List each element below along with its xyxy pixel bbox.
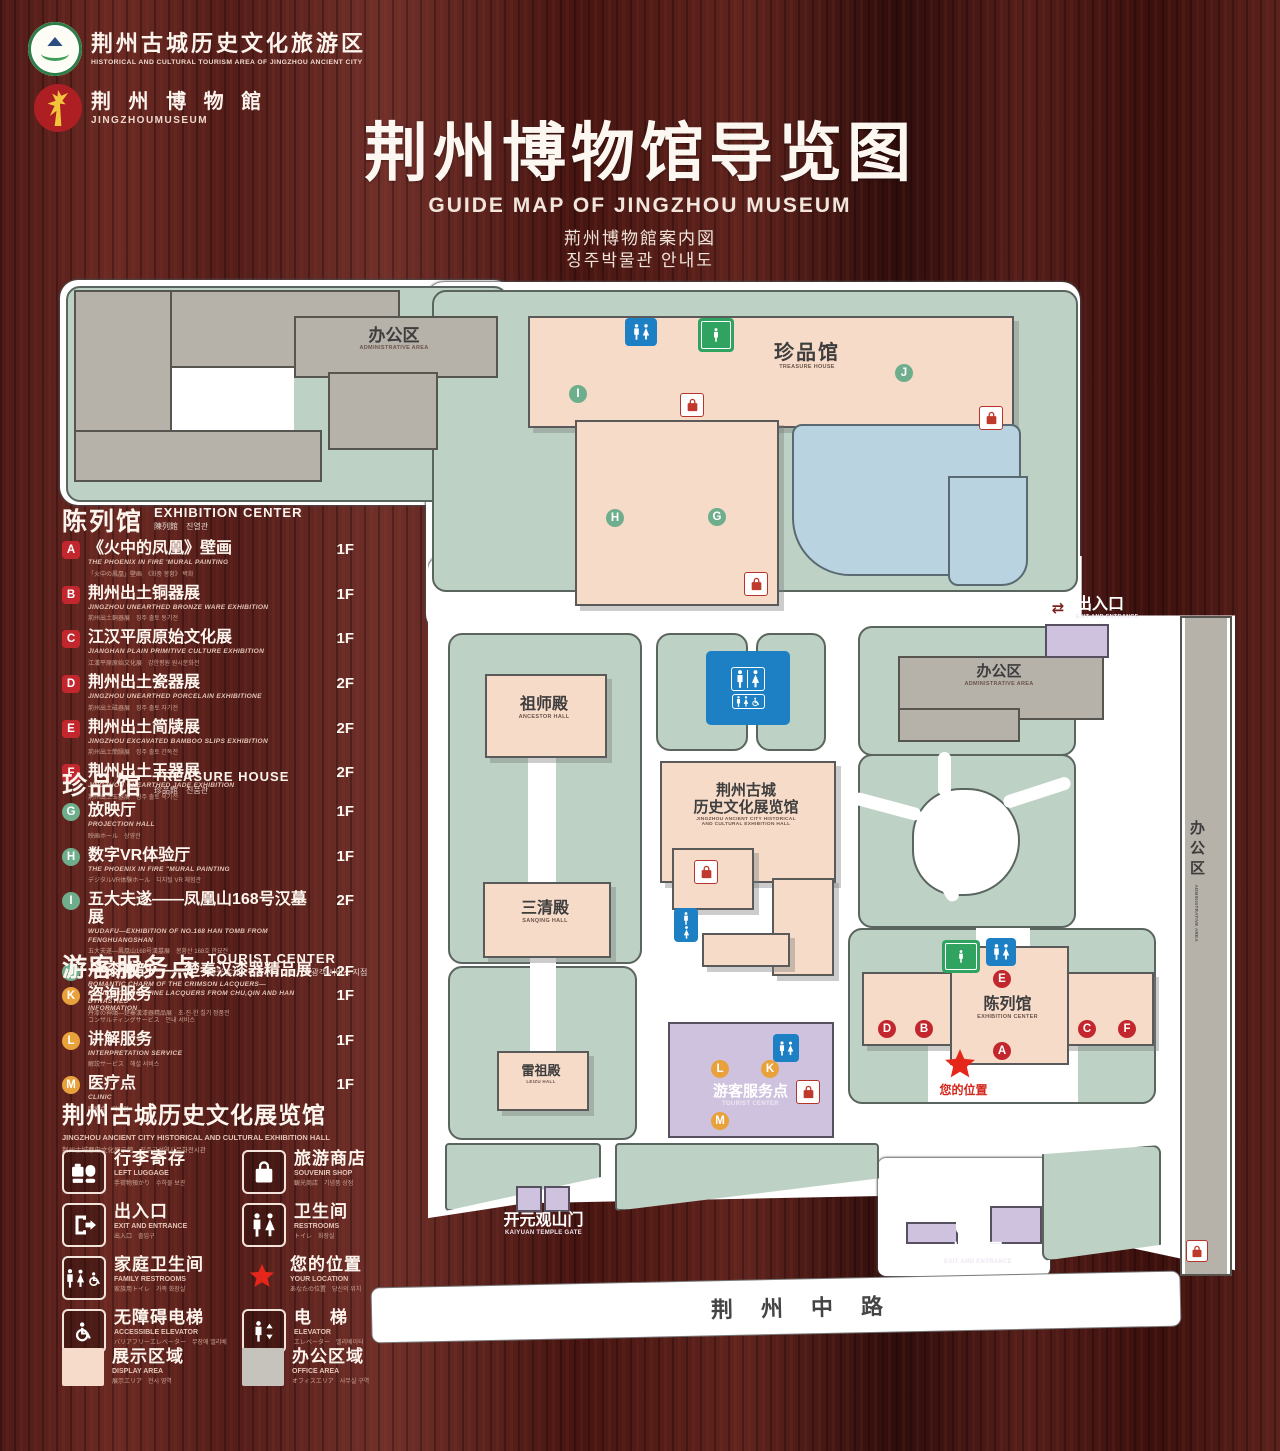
label-sanqing-hall: 三清殿SANQING HALL [485, 900, 605, 924]
map-badge-j: J [895, 364, 913, 382]
badge-d: D [62, 675, 80, 693]
floor-label: 1F [336, 1032, 354, 1049]
floor-label: 2F [336, 892, 354, 909]
restrooms-family-icon [706, 651, 790, 725]
area-office: 办公区域OFFICE AREAオフィスエリア 사무실 구역 [242, 1348, 410, 1386]
road-label: 荆州中路 [711, 1288, 912, 1324]
legend-item-g: G放映厅PROJECTION HALL映画ホール 상영관1F [62, 802, 354, 840]
legend-item-d: D荆州出土瓷器展JINGZHOU UNEARTHED PORCELAIN EXH… [62, 674, 354, 712]
badge-h: H [62, 848, 80, 866]
restrooms-icon [674, 908, 698, 942]
label-tourist-center: 游客服务点TOURIST CENTER [688, 1084, 813, 1108]
souvenir-shop-icon [242, 1150, 286, 1194]
badge-l: L [62, 1032, 80, 1050]
tourism-area-logo-icon [28, 22, 82, 76]
exit-entrance-icon: ⇅ [956, 1200, 990, 1234]
museum-logo-icon [34, 84, 82, 132]
map-badge-f: F [1118, 1020, 1136, 1038]
elevator-icon [698, 318, 734, 352]
exit-entrance-icon: ⇄ [1046, 596, 1070, 620]
your-location-star [944, 1048, 976, 1080]
page-title: 荆州博物馆导览图 [240, 102, 1040, 194]
facilities-legend: 行李寄存LEFT LUGGAGE手荷物預かり 수하물 보관 旅游商店SOUVEN… [62, 1150, 410, 1355]
history-exhibition-hall-building [702, 933, 790, 967]
badge-e: E [62, 720, 80, 738]
floor-label: 2F [336, 764, 354, 781]
floor-label: 1F [336, 1076, 354, 1093]
legend-item-e: E荆州出土简牍展JINGZHOU EXCAVATED BAMBOO SLIPS … [62, 719, 354, 757]
map-badge-d: D [878, 1020, 896, 1038]
map-badge-m: M [711, 1112, 729, 1130]
facility-souvenir-shop: 旅游商店SOUVENIR SHOP観光商店 기념품 상점 [242, 1150, 410, 1194]
souvenir-shop-icon [694, 860, 718, 884]
label-admin-east: 办公区ADMINISTRATIVE AREA [900, 664, 1098, 687]
floor-label: 1F [336, 541, 354, 558]
area-display: 展示区域DISPLAY AREA展示エリア 전시 영역 [62, 1348, 230, 1386]
floor-label: 1F [336, 803, 354, 820]
facility-left-luggage: 行李寄存LEFT LUGGAGE手荷物預かり 수하물 보관 [62, 1150, 230, 1194]
section-title-sub: 珍品館 진품관 [154, 785, 289, 796]
map-badge-h: H [606, 509, 624, 527]
page-subtitle-en: GUIDE MAP OF JINGZHOU MUSEUM [240, 194, 1040, 218]
floor-label: 1F [336, 848, 354, 865]
display-area-swatch [62, 1348, 104, 1386]
page-subtitle-ko: 징주박물관 안내도 [240, 246, 1040, 271]
legend-section-treasure-header: 珍品馆 TREASURE HOUSE珍品館 진품관 [62, 766, 289, 802]
label-your-location: 您的位置 [916, 1084, 1011, 1097]
map-badge-k: K [761, 1060, 779, 1078]
hall-note: 荆州古城历史文化展览馆 JINGZHOU ANCIENT CITY HISTOR… [62, 1096, 422, 1154]
label-treasure-house: 珍品馆TREASURE HOUSE [742, 342, 872, 371]
admin-building-nw [328, 372, 438, 450]
label-admin-strip: 办公区 ADMINISTRATIVE AREA [1186, 820, 1207, 1000]
exit-gate-south [990, 1206, 1042, 1244]
legend-item-b: B荆州出土铜器展JINGZHOU UNEARTHED BRONZE WARE E… [62, 585, 354, 623]
tourism-area-logo-cn: 荆州古城历史文化旅游区 [91, 32, 366, 56]
corridor-sanqing-leizu [530, 950, 556, 1054]
label-kaiyuan-gate: 开元观山门KAIYUAN TEMPLE GATE [466, 1212, 621, 1237]
elevator-icon [942, 940, 980, 973]
courtyard-cut [168, 364, 294, 430]
left-luggage-icon [62, 1150, 106, 1194]
treasure-house-building [528, 316, 1014, 428]
accessible-elevator-icon [62, 1309, 106, 1353]
admin-building-east [898, 708, 1020, 742]
map-badge-b: B [915, 1020, 933, 1038]
restrooms-icon [625, 318, 657, 346]
facility-exit-entrance: 出入口EXIT AND ENTRANCE出入口 출입구 [62, 1203, 230, 1247]
label-exit-south: 出入口EXIT AND ENTRANCE [918, 1240, 1038, 1266]
garden-path [938, 752, 951, 796]
facility-family-restrooms: 家庭卫生间FAMILY RESTROOMS家族用トイレ 가족 화장실 [62, 1256, 230, 1300]
museum-logo: 荆 州 博 物 館 JINGZHOUMUSEUM [34, 84, 267, 132]
gate-block [516, 1186, 542, 1212]
map-badge-g: G [708, 508, 726, 526]
souvenir-shop-icon [979, 406, 1003, 430]
map-badge-i: I [569, 385, 587, 403]
section-title-sub: 観光客サービスポイント 관광객 서비스 지점 [208, 967, 367, 978]
badge-i: I [62, 892, 80, 910]
floor-label: 2F [336, 720, 354, 737]
legend-section-tourist-header: 游客服务点 TOURIST CENTER観光客サービスポイント 관광객 서비스 … [62, 948, 367, 984]
badge-m: M [62, 1076, 80, 1094]
family-restrooms-icon [62, 1256, 106, 1300]
floor-label: 1F [336, 987, 354, 1004]
office-area-swatch [242, 1348, 284, 1386]
badge-a: A [62, 541, 80, 559]
label-leizu-hall: 雷祖殿LEIZU HALL [499, 1064, 583, 1084]
tourism-area-logo-en: HISTORICAL AND CULTURAL TOURISM AREA OF … [91, 59, 366, 66]
area-legend: 展示区域DISPLAY AREA展示エリア 전시 영역 办公区域OFFICE A… [62, 1348, 410, 1386]
road-jingzhou-middle: 荆州中路 [372, 1272, 1181, 1343]
map-badge-c: C [1078, 1020, 1096, 1038]
section-title-cn: 陈列馆 [62, 502, 143, 538]
label-ancestor-hall: 祖师殿ANCESTOR HALL [487, 696, 601, 720]
legend-item-k: K咨询服务INFORMATIONコンサルティングサービス 안내 서비스1F [62, 986, 354, 1024]
exit-entrance-icon [62, 1203, 106, 1247]
section-title-en: TREASURE HOUSE [154, 769, 289, 784]
strip-south-mid [615, 1143, 879, 1211]
legend-item-a: A《火中的凤凰》壁画THE PHOENIX IN FIRE 'MURAL PAI… [62, 540, 354, 578]
map-badge-e: E [993, 970, 1011, 988]
tourism-area-logo-text: 荆州古城历史文化旅游区 HISTORICAL AND CULTURAL TOUR… [91, 32, 366, 65]
souvenir-shop-icon [796, 1080, 820, 1104]
floor-label: 1F [336, 586, 354, 603]
corridor-ancestor-sanqing [528, 753, 556, 885]
legend-item-i: I五大夫遂——凤凰山168号汉墓展WUDAFU—EXHIBITION OF NO… [62, 891, 354, 955]
admin-building-nw [74, 430, 322, 482]
left-luggage-icon [908, 1180, 948, 1220]
strip-south-east [1042, 1145, 1161, 1261]
elevator-icon [242, 1309, 286, 1353]
facility-restrooms: 卫生间RESTROOMSトイレ 화장실 [242, 1203, 410, 1247]
badge-g: G [62, 803, 80, 821]
floor-label: 2F [336, 675, 354, 692]
floor-label: 1F [336, 630, 354, 647]
map-badge-a: A [993, 1042, 1011, 1060]
souvenir-shop-icon [1186, 1240, 1208, 1262]
section-title-cn: 游客服务点 [62, 948, 197, 984]
restrooms-icon [986, 938, 1016, 966]
restrooms-icon [242, 1203, 286, 1247]
label-exit-north: 出入口EXIT AND ENTRANCE [1076, 596, 1196, 620]
souvenir-shop-icon [744, 572, 768, 596]
section-title-en: EXHIBITION CENTER [154, 505, 302, 520]
section-title-en: TOURIST CENTER [208, 951, 367, 966]
legend-item-l: L讲解服务INTERPRETATION SERVICE解説サービス 해설 서비스… [62, 1031, 354, 1069]
legend-item-c: C江汉平原原始文化展JIANGHAN PLAIN PRIMITIVE CULTU… [62, 629, 354, 667]
map-badge-l: L [711, 1060, 729, 1078]
badge-c: C [62, 630, 80, 648]
pond [948, 476, 1028, 586]
your-location-icon [242, 1256, 282, 1296]
tourism-area-logo: 荆州古城历史文化旅游区 HISTORICAL AND CULTURAL TOUR… [28, 22, 366, 76]
legend-item-h: H数字VR体验厅THE PHOENIX IN FIRE "MURAL PAINT… [62, 847, 354, 885]
label-history-exhibition-hall: 荆州古城历史文化展览馆 JINGZHOU ANCIENT CITY HISTOR… [662, 783, 830, 827]
section-title-sub: 陳列館 진열관 [154, 521, 302, 532]
badge-b: B [62, 586, 80, 604]
gate-block [544, 1186, 570, 1212]
section-title-cn: 珍品馆 [62, 766, 143, 802]
legend-section-exhibition-header: 陈列馆 EXHIBITION CENTER陳列館 진열관 [62, 502, 302, 538]
entrance-building-north [1045, 624, 1109, 658]
label-admin-northwest: 办公区ADMINISTRATIVE AREA [304, 326, 484, 351]
badge-k: K [62, 987, 80, 1005]
label-exhibition-center: 陈列馆EXHIBITION CENTER [955, 996, 1060, 1020]
restrooms-icon [773, 1034, 799, 1062]
souvenir-shop-icon [680, 393, 704, 417]
